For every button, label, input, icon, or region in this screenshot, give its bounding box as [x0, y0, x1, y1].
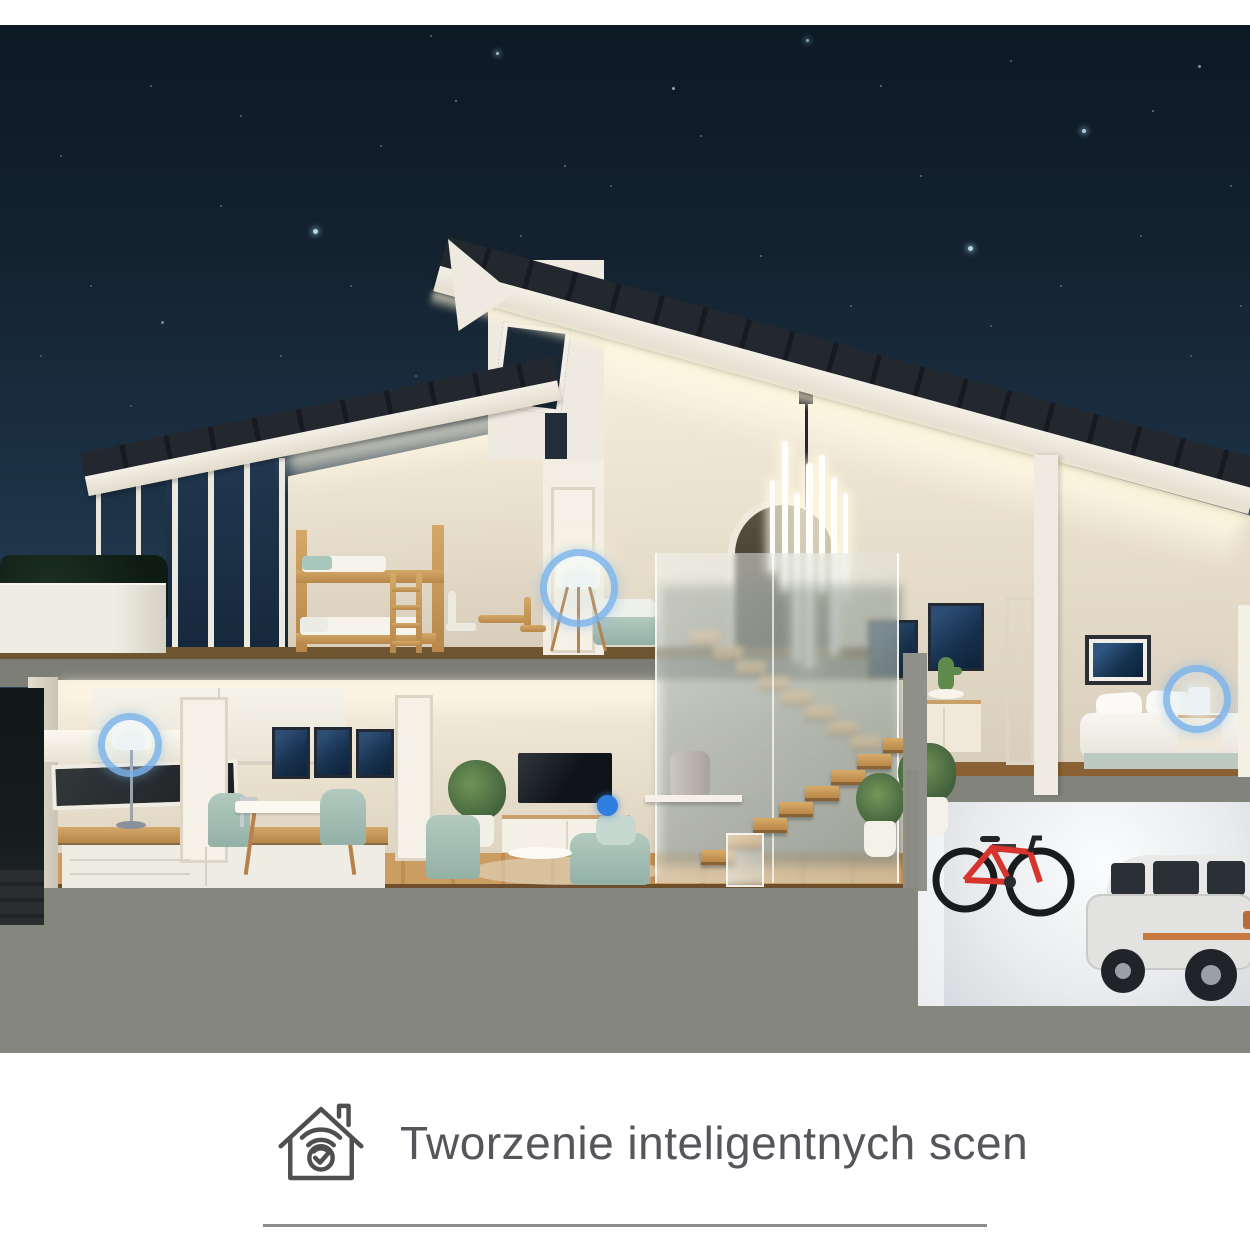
wall-mounted-bicycle: [930, 820, 1080, 930]
hallway-picture: [928, 603, 984, 671]
highlight-dot-living-room: [597, 795, 618, 816]
star: [1060, 285, 1062, 287]
cactus-bowl: [928, 689, 964, 699]
kitchen-drawer-line: [70, 873, 190, 875]
car-taillight: [1243, 911, 1250, 929]
hallway-door-frame: [1006, 597, 1034, 765]
tv-screen: [518, 753, 612, 803]
garage-car: [1085, 847, 1250, 1007]
highlight-ring-landing-lamp: [540, 549, 618, 627]
star: [990, 325, 992, 327]
star: [564, 165, 566, 167]
foundation: [0, 888, 918, 1053]
armchair-cushion: [596, 815, 636, 845]
wifi-arc: [302, 1130, 340, 1138]
star: [850, 305, 852, 307]
star: [520, 235, 522, 237]
star: [968, 246, 973, 251]
smart-speaker: [670, 751, 710, 797]
glass-seam: [772, 553, 774, 883]
car-window: [1153, 861, 1199, 895]
star: [1230, 185, 1232, 187]
star: [760, 255, 762, 257]
dining-chair: [320, 789, 366, 845]
right-gable-strip: [1034, 455, 1058, 795]
bike-saddle: [980, 836, 1000, 842]
star: [430, 35, 432, 37]
star: [240, 115, 242, 117]
glass-mullion: [172, 473, 178, 649]
stair-bottom-glass: [726, 833, 764, 887]
star: [610, 185, 612, 187]
smart-home-scene-icon: [268, 1090, 374, 1196]
cactus-arm: [950, 667, 962, 675]
caption-text: Tworzenie inteligentnych scen: [400, 1116, 1028, 1170]
car-hub: [1115, 963, 1131, 979]
sideboard-seam: [943, 707, 945, 749]
check-mark: [315, 1153, 328, 1163]
star: [1010, 60, 1012, 62]
stairs-frosted-glass: [655, 553, 899, 883]
stair-plant-pot: [864, 821, 896, 857]
dining-picture: [356, 729, 394, 778]
dining-picture: [314, 727, 352, 778]
star: [1152, 110, 1154, 112]
star: [380, 145, 382, 147]
glass-mullion: [279, 458, 285, 649]
star: [455, 100, 457, 102]
bunk-bottom-pillow: [300, 617, 328, 632]
highlight-ring-kitchen-lamp: [98, 713, 162, 777]
stair-step-lower: [779, 802, 813, 817]
star: [672, 87, 675, 90]
kids-chair-2-seat: [520, 625, 546, 632]
star: [1190, 355, 1192, 357]
left-pavement: [0, 870, 44, 925]
bunk-top-pillow: [302, 556, 332, 570]
bunk-ladder-rung: [392, 641, 420, 646]
bunk-ladder-rung: [392, 623, 420, 628]
star: [280, 355, 282, 357]
stair-plant-foliage: [856, 773, 904, 827]
speaker-shelf: [645, 795, 742, 802]
caption: Tworzenie inteligentnych scen: [268, 1090, 1028, 1196]
highlight-ring-bedroom-lamp: [1163, 665, 1231, 733]
star: [313, 229, 318, 234]
car-window: [1111, 863, 1145, 895]
terrace-planter: [0, 583, 166, 653]
car-hub: [1201, 965, 1221, 985]
bedroom-picture-art: [1093, 643, 1143, 677]
star: [806, 39, 809, 42]
star: [880, 85, 882, 87]
star: [496, 52, 499, 55]
star: [415, 375, 417, 377]
tv-cabinet-seam: [566, 821, 568, 849]
star: [130, 405, 132, 407]
star: [1240, 305, 1242, 307]
star: [1082, 129, 1086, 133]
kitchen-lamp-base: [116, 821, 146, 829]
foundation-right: [918, 1006, 1250, 1053]
dining-picture: [272, 727, 310, 779]
star: [90, 285, 92, 287]
stair-step-lower: [753, 818, 787, 833]
glass-mullion: [244, 463, 250, 649]
terrace-glass-wall: [166, 450, 288, 650]
bottom-divider: [263, 1224, 987, 1227]
star: [700, 135, 702, 137]
coffee-table-top: [508, 847, 572, 859]
star: [161, 321, 164, 324]
bed-base: [1084, 753, 1250, 769]
armchair: [426, 815, 480, 879]
bike-crank: [1004, 876, 1016, 888]
kids-table-top: [478, 615, 526, 623]
star: [150, 85, 152, 87]
car-window: [1207, 861, 1245, 895]
star: [1198, 65, 1201, 68]
car-accent-stripe: [1143, 933, 1250, 940]
star: [350, 285, 352, 287]
star: [60, 155, 62, 157]
kids-chair-seat: [446, 623, 476, 631]
stair-step-lower: [857, 754, 891, 769]
stair-step-lower: [805, 786, 839, 801]
bunk-ladder-rung: [392, 605, 420, 610]
house-chimney: [339, 1106, 349, 1125]
bunk-ladder-rung: [392, 587, 420, 592]
bedroom-picture: [1085, 635, 1151, 685]
clerestory-window-slot: [545, 413, 567, 459]
bedroom-wardrobe: [1238, 605, 1250, 777]
plant-foliage: [448, 760, 506, 820]
star: [40, 355, 42, 357]
kitchen-drawer-line: [70, 859, 190, 861]
glass-mullion: [208, 468, 214, 649]
kitchen-cabinet-door-seam: [205, 847, 207, 886]
star: [920, 175, 922, 177]
smart-home-illustration: [0, 25, 1250, 1053]
star: [1140, 235, 1142, 237]
star: [220, 205, 222, 207]
